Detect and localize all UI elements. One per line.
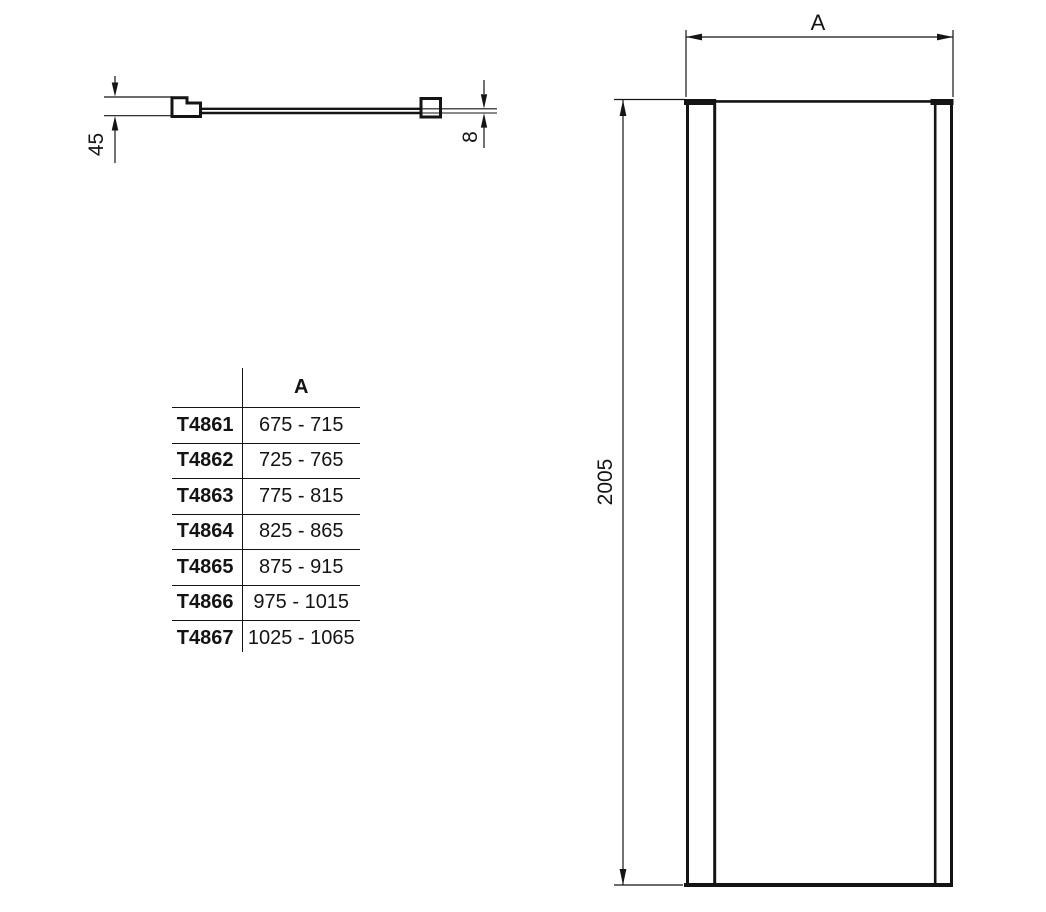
table-header-row: A <box>172 368 360 407</box>
width-range: 975 - 1015 <box>243 591 361 614</box>
arrowhead-left <box>686 34 702 41</box>
height-dim-label: 2005 <box>594 459 617 506</box>
depth-dimension: 45 <box>85 76 173 163</box>
model-code: T4867 <box>172 627 243 650</box>
table-row: T4865 875 - 915 <box>172 549 360 585</box>
table-row: T4862 725 - 765 <box>172 443 360 479</box>
arrowhead-down <box>481 94 487 108</box>
arrowhead-up <box>620 100 627 116</box>
width-dim-label: A <box>811 10 826 35</box>
model-code: T4865 <box>172 556 243 579</box>
model-code: T4866 <box>172 591 243 614</box>
wall-profile-section <box>172 98 201 117</box>
arrowhead-down <box>620 869 627 885</box>
table-header-a: A <box>243 368 361 407</box>
table-row: T4867 1025 - 1065 <box>172 620 360 656</box>
table-header-spacer <box>172 368 243 407</box>
model-code: T4864 <box>172 520 243 543</box>
arrowhead-right <box>937 34 953 41</box>
arrowhead-up <box>481 113 487 127</box>
size-table-body: T4861 675 - 715 T4862 725 - 765 T4863 77… <box>172 407 360 656</box>
width-range: 725 - 765 <box>243 449 361 472</box>
model-code: T4861 <box>172 414 243 437</box>
size-table: A T4861 675 - 715 T4862 725 - 765 T4863 … <box>172 368 360 656</box>
depth-dim-label: 45 <box>85 133 108 156</box>
glass-panel-top <box>201 109 422 113</box>
model-code: T4862 <box>172 449 243 472</box>
table-column-divider <box>242 368 244 652</box>
width-range: 825 - 865 <box>243 520 361 543</box>
bracket-outline <box>421 99 441 118</box>
technical-drawing-page: 45 8 A <box>0 0 1046 912</box>
model-code: T4863 <box>172 485 243 508</box>
width-range: 675 - 715 <box>243 414 361 437</box>
width-range: 875 - 915 <box>243 556 361 579</box>
side-panel <box>684 99 954 886</box>
width-range: 775 - 815 <box>243 485 361 508</box>
front-view-drawing: A 2005 <box>570 0 1046 912</box>
table-row: T4863 775 - 815 <box>172 478 360 514</box>
table-row: T4866 975 - 1015 <box>172 585 360 621</box>
table-row: T4864 825 - 865 <box>172 514 360 550</box>
width-dimension: A <box>686 10 953 97</box>
height-dimension: 2005 <box>594 100 685 886</box>
arrowhead-down <box>112 83 119 97</box>
thickness-dimension: 8 <box>459 80 487 148</box>
table-row: T4861 675 - 715 <box>172 407 360 443</box>
width-range: 1025 - 1065 <box>243 627 361 650</box>
arrowhead-up <box>112 116 119 131</box>
thickness-dim-label: 8 <box>459 131 482 143</box>
plan-view-drawing: 45 8 <box>80 60 510 180</box>
wall-profile-outline <box>172 98 201 117</box>
